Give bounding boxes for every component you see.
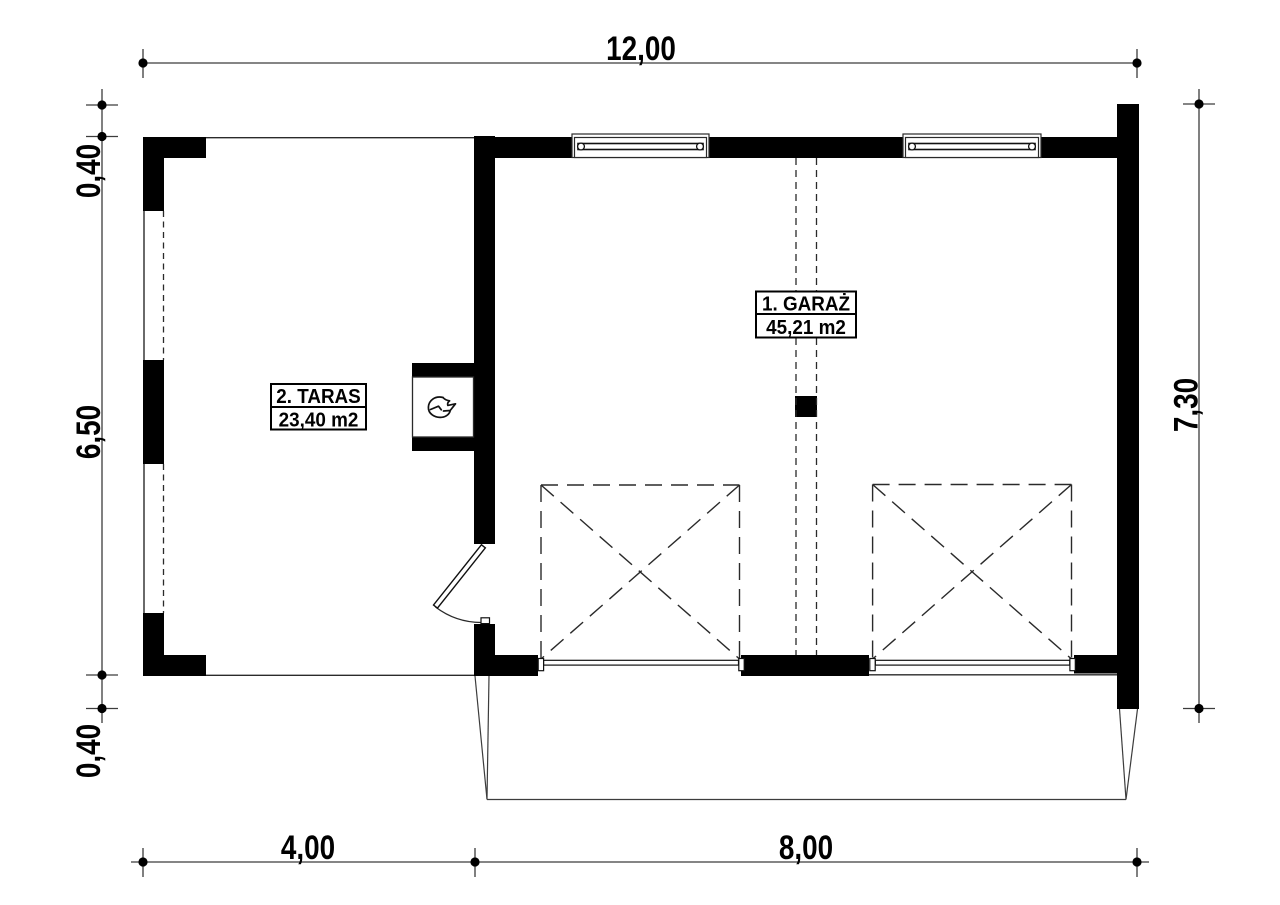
svg-text:4,00: 4,00 — [281, 828, 335, 866]
svg-text:1. GARAŻ: 1. GARAŻ — [762, 292, 850, 316]
svg-text:45,21 m2: 45,21 m2 — [766, 316, 846, 339]
svg-text:0,40: 0,40 — [69, 144, 107, 198]
svg-text:23,40 m2: 23,40 m2 — [279, 409, 359, 432]
svg-text:6,50: 6,50 — [69, 405, 107, 459]
svg-text:12,00: 12,00 — [606, 29, 676, 67]
svg-text:0,40: 0,40 — [69, 724, 107, 778]
svg-text:7,30: 7,30 — [1167, 378, 1205, 432]
svg-text:2. TARAS: 2. TARAS — [276, 385, 360, 408]
svg-text:8,00: 8,00 — [779, 828, 833, 866]
